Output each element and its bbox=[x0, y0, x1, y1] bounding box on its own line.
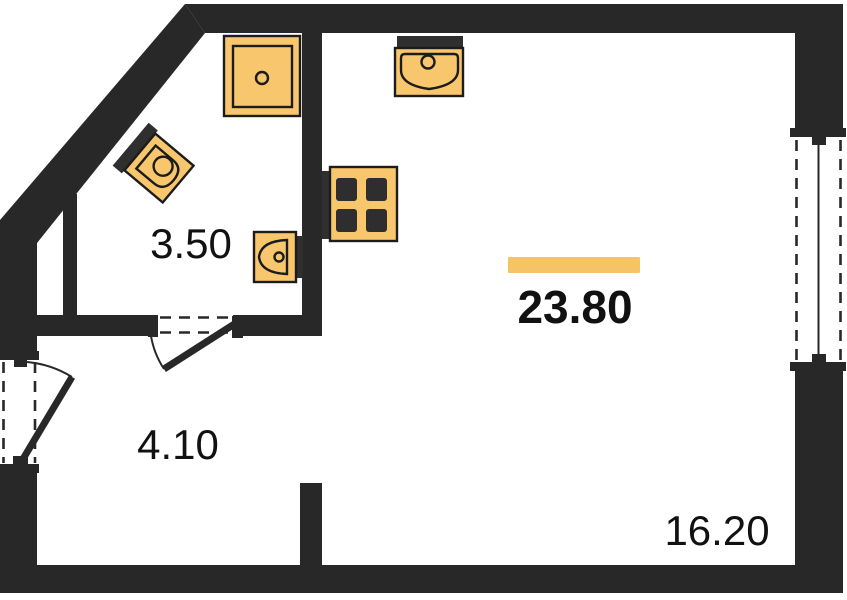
stove-burner-3 bbox=[336, 209, 357, 232]
left-window-leaf bbox=[20, 377, 72, 464]
bathroom-west-wall bbox=[63, 194, 77, 336]
bottom-wall bbox=[0, 565, 843, 593]
left-window-bottom-sill bbox=[0, 464, 39, 473]
right-window-top-tab bbox=[812, 136, 826, 145]
stove-burner-1 bbox=[336, 178, 357, 201]
right-window-bottom-sill bbox=[790, 362, 846, 371]
door-swing-arc bbox=[151, 336, 164, 369]
shower-tray-icon bbox=[224, 36, 300, 116]
right-window bbox=[790, 128, 846, 371]
door-leaf bbox=[164, 323, 236, 369]
top-wall bbox=[185, 4, 843, 33]
corner-sink-icon bbox=[113, 123, 196, 206]
bathroom-east-wall bbox=[302, 33, 322, 336]
left-wall-upper bbox=[0, 240, 37, 360]
right-window-bottom-tab bbox=[812, 354, 826, 363]
total-area-label: 23.80 bbox=[517, 280, 632, 334]
stove-burner-2 bbox=[366, 178, 387, 201]
shower-body bbox=[224, 36, 300, 116]
toilet-icon bbox=[254, 232, 303, 282]
bathroom-south-wall-left bbox=[37, 315, 158, 336]
kitchen-sink-mount bbox=[397, 36, 463, 48]
living-area-label: 16.20 bbox=[664, 507, 769, 555]
hall-area-label: 4.10 bbox=[137, 421, 219, 469]
total-area-highlight-bar bbox=[508, 257, 640, 273]
stove-icon bbox=[322, 167, 397, 241]
left-wall-lower bbox=[0, 473, 37, 593]
diagonal-wall bbox=[0, 4, 205, 243]
kitchen-zone-stub-wall bbox=[300, 483, 322, 567]
right-window-top-sill bbox=[790, 128, 846, 137]
left-window-top-sill bbox=[0, 351, 39, 360]
bathroom-door bbox=[148, 316, 243, 369]
left-window-top-tab bbox=[14, 359, 27, 367]
floor-plan: 3.50 4.10 23.80 16.20 bbox=[0, 0, 847, 600]
bathroom-area-label: 3.50 bbox=[150, 220, 232, 268]
right-wall-lower bbox=[795, 363, 843, 593]
door-jamb-left bbox=[148, 316, 158, 337]
right-wall-upper bbox=[795, 4, 843, 135]
stove-mount bbox=[322, 171, 330, 239]
kitchen-sink-icon bbox=[395, 36, 463, 96]
stove-burner-4 bbox=[366, 209, 387, 232]
left-window bbox=[0, 351, 72, 473]
